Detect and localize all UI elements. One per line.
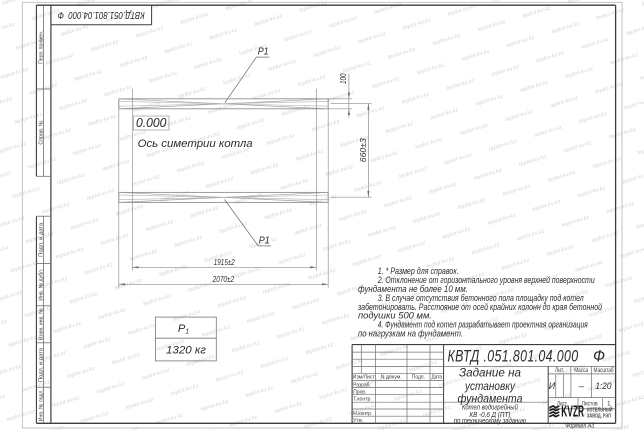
svg-text:teplot-kv.kz: teplot-kv.kz: [641, 0, 644, 8]
svg-text:Котел водогрейный: Котел водогрейный: [462, 404, 518, 412]
svg-text:100: 100: [338, 73, 348, 84]
svg-text:по техническому заданию: по техническому заданию: [454, 417, 527, 425]
svg-text:Масштаб: Масштаб: [594, 368, 614, 374]
svg-text:1915±2: 1915±2: [214, 257, 235, 267]
svg-text:Н.контр.: Н.контр.: [353, 411, 372, 417]
svg-text:Подп.: Подп.: [412, 375, 425, 381]
svg-text:КВТД .051.801.04.000: КВТД .051.801.04.000: [448, 348, 579, 366]
svg-text:фундамента: фундамента: [458, 391, 523, 405]
svg-text:Масса: Масса: [574, 368, 589, 374]
svg-text:2070±2: 2070±2: [212, 274, 235, 284]
svg-text:Ф: Ф: [593, 348, 605, 366]
svg-text:Дата: Дата: [432, 375, 443, 381]
svg-text:Пров.: Пров.: [353, 389, 366, 395]
svg-text:Подп. и дата: Подп. и дата: [38, 347, 44, 382]
svg-text:660±3: 660±3: [358, 138, 368, 162]
svg-text:Формат А3: Формат А3: [565, 421, 595, 430]
svg-text:Взам. инв. №: Взам. инв. №: [38, 308, 44, 340]
svg-text:1:20: 1:20: [595, 381, 612, 392]
svg-text:Р1: Р1: [258, 46, 269, 58]
svg-text:0.000: 0.000: [136, 115, 167, 130]
svg-text:–: –: [578, 381, 585, 391]
svg-text:И: И: [549, 381, 556, 391]
svg-text:Лит.: Лит.: [555, 368, 564, 374]
svg-text:N докум.: N докум.: [381, 375, 402, 381]
svg-text:КОТЕЛЬНЫЙ: КОТЕЛЬНЫЙ: [587, 405, 613, 413]
svg-text:Утв.: Утв.: [353, 418, 363, 424]
svg-text:Перв. примен.: Перв. примен.: [38, 30, 44, 63]
svg-text:Инв. № подл.: Инв. № подл.: [38, 389, 44, 421]
svg-text:КВТД.051.801.04.000 Ф: КВТД.051.801.04.000 Ф: [58, 9, 145, 20]
svg-text:по нагрузкам на фундамент.: по нагрузкам на фундамент.: [358, 329, 463, 339]
svg-text:KVZR: KVZR: [561, 404, 584, 421]
svg-text:Т.контр.: Т.контр.: [353, 397, 372, 403]
svg-text:Задание на: Задание на: [459, 365, 521, 379]
svg-text:Инв. № дубл.: Инв. № дубл.: [38, 268, 44, 300]
svg-text:Ось симетрии котла: Ось симетрии котла: [138, 138, 253, 150]
svg-text:ЗАВОД, РЭП: ЗАВОД, РЭП: [587, 413, 611, 419]
svg-text:Подп. и дата: Подп. и дата: [38, 222, 44, 257]
svg-text:Справ. №: Справ. №: [38, 121, 44, 145]
svg-text:Р1: Р1: [259, 234, 270, 246]
svg-text:Разраб.: Разраб.: [353, 382, 371, 388]
svg-text:Изм/Лист: Изм/Лист: [353, 375, 375, 381]
svg-text:1320 кг: 1320 кг: [166, 345, 207, 357]
